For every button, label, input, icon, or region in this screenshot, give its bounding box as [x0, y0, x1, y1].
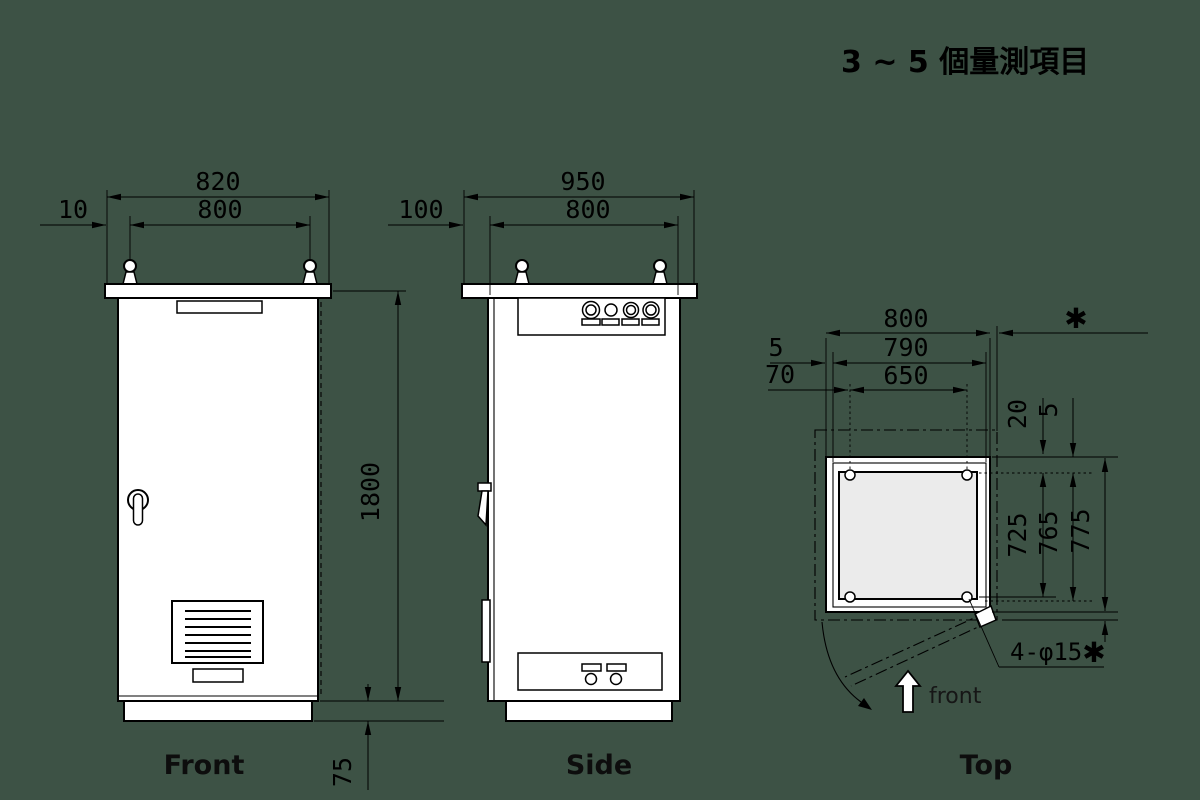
front-view: 820 800 10 1800 75 Front: [40, 167, 444, 790]
top-dim-rear-gap: 20: [1003, 399, 1032, 429]
side-base: [506, 701, 672, 721]
top-hole-note: 4-φ15: [1010, 638, 1082, 666]
top-dim-plate-width: 650: [883, 361, 928, 390]
side-eyebolt-left: [515, 260, 529, 284]
front-nameplate: [177, 301, 262, 313]
front-dim-base-height: 75: [328, 757, 357, 787]
front-eyebolt-left: [123, 260, 137, 284]
top-hole-note-asterisk: ✱: [1082, 636, 1105, 669]
top-front-arrow-icon: [896, 671, 920, 712]
side-view-label: Side: [566, 750, 632, 781]
side-connector-panel: [518, 298, 665, 335]
front-lower-plate: [193, 669, 243, 682]
side-body: [488, 298, 680, 701]
front-vent-grille: [172, 601, 263, 663]
front-dim-edge-offset: 10: [58, 195, 88, 224]
top-dim-hole-span: 725: [1003, 512, 1032, 557]
top-hole-tr: [962, 470, 972, 480]
front-base: [124, 701, 312, 721]
top-view: front 800 ✱ 790 5 650: [765, 302, 1148, 781]
side-eyebolt-right: [653, 260, 667, 284]
top-view-label: Top: [960, 750, 1013, 781]
top-mounting-plate: [839, 472, 977, 599]
top-dim-door-width: 790: [883, 333, 928, 362]
side-hinge-strip: [482, 600, 490, 662]
top-hole-br: [962, 592, 972, 602]
side-lower-panel: [518, 653, 662, 690]
top-dim-body-width: 800: [883, 304, 928, 333]
front-cabinet: [105, 260, 331, 721]
top-hole-bl: [845, 592, 855, 602]
engineering-drawing: 3 ~ 5 個量測項目: [0, 0, 1200, 800]
top-front-marker-label: front: [929, 684, 982, 709]
front-eyebolt-right: [303, 260, 317, 284]
front-top-plate: [105, 284, 331, 298]
front-dim-body-width: 800: [197, 195, 242, 224]
top-cabinet: front: [815, 430, 997, 712]
top-dim-plate-depth: 765: [1034, 510, 1063, 555]
top-door-swing-arc: [822, 622, 872, 710]
side-cabinet: [462, 260, 697, 721]
side-dim-plate-depth: 950: [560, 167, 605, 196]
side-dim-body-depth: 800: [565, 195, 610, 224]
top-dim-hole-offset: 70: [765, 360, 795, 389]
front-dim-body-height: 1800: [356, 462, 385, 522]
top-dim-gap-left: 5: [768, 333, 783, 362]
top-open-door: [845, 606, 996, 686]
front-dim-plate-width: 820: [195, 167, 240, 196]
side-dim-front-offset: 100: [398, 195, 443, 224]
top-asterisk-ref: ✱: [1064, 302, 1087, 335]
side-top-plate: [462, 284, 697, 298]
drawing-title: 3 ~ 5 個量測項目: [841, 45, 1089, 80]
top-dim-body-depth: 775: [1066, 508, 1095, 553]
top-hole-tl: [845, 470, 855, 480]
top-dim-rear-plate-gap: 5: [1034, 402, 1063, 417]
front-view-label: Front: [164, 750, 245, 781]
side-view: 950 800 100 Side: [388, 167, 697, 781]
side-dimensions: 950 800 100: [388, 167, 694, 295]
